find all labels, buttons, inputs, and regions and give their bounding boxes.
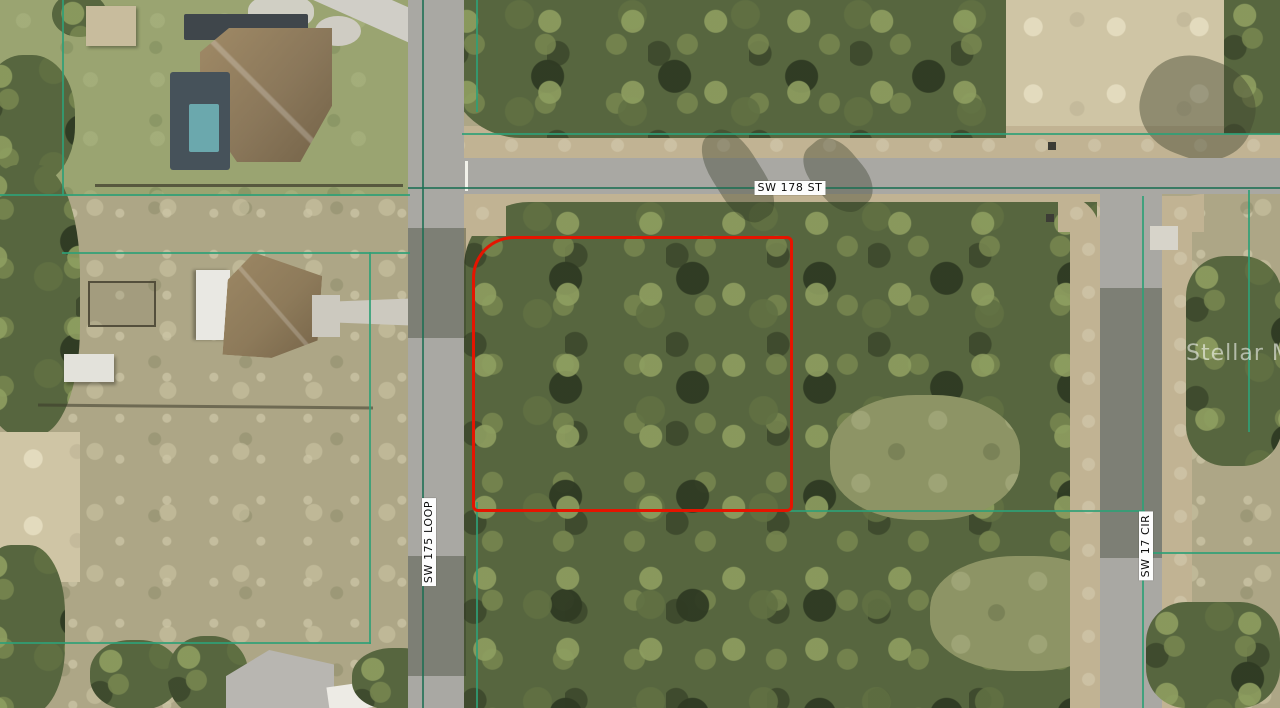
parcel-boundary-line — [0, 194, 410, 196]
parcel-boundary-line — [1142, 196, 1144, 708]
storm-drain — [1046, 214, 1054, 222]
swimming-pool — [189, 104, 219, 152]
aerial-map: SW 178 ST SW 175 LOOP SW 17 CIR Stellar … — [0, 0, 1280, 708]
shed-roof — [86, 6, 136, 46]
storm-drain — [1048, 142, 1056, 150]
tree-cluster — [0, 545, 65, 708]
tree-shadow — [408, 556, 466, 676]
tree-shadow — [408, 228, 466, 338]
parcel-boundary-line — [408, 187, 1280, 189]
subject-parcel-outline — [472, 236, 793, 512]
street-label-sw-17-cir: SW 17 CIR — [1139, 512, 1153, 581]
wooded-parcel — [446, 0, 1006, 138]
fence-line — [95, 184, 403, 187]
parcel-boundary-line — [62, 0, 64, 196]
parcel-boundary-line — [369, 252, 371, 644]
forest-clearing — [830, 395, 1020, 520]
shed-roof — [64, 354, 114, 382]
animal-pen — [88, 281, 156, 327]
driveway-pad — [312, 295, 340, 337]
parcel-boundary-line — [462, 133, 1280, 135]
parcel-boundary-line — [476, 502, 478, 708]
road-shoulder — [1070, 230, 1100, 708]
parcel-boundary-line — [422, 0, 424, 708]
pool-enclosure — [170, 72, 230, 170]
parcel-boundary-line — [0, 642, 371, 644]
street-label-sw-175-loop: SW 175 LOOP — [422, 498, 436, 586]
mls-watermark: Stellar MLS — [1186, 341, 1280, 367]
parcel-boundary-line — [1248, 190, 1250, 432]
parcel-boundary-line — [62, 252, 410, 254]
tree-cluster — [90, 640, 180, 708]
driveway-apron — [1150, 226, 1178, 250]
tree-cluster — [1146, 602, 1280, 708]
parcel-boundary-line — [1142, 552, 1280, 554]
parcel-boundary-line — [476, 0, 478, 112]
tree-cluster — [0, 165, 80, 435]
street-label-sw-178-st: SW 178 ST — [755, 181, 826, 195]
